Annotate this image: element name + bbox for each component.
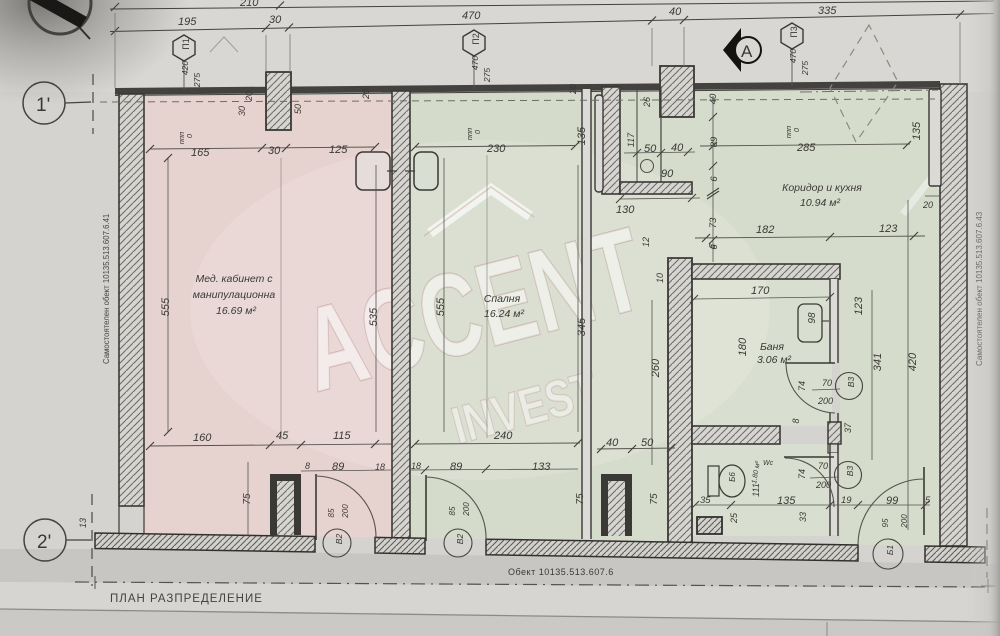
svg-text:70: 70 <box>818 461 828 471</box>
svg-text:111: 111 <box>751 483 761 497</box>
svg-text:125: 125 <box>329 144 348 156</box>
svg-text:6: 6 <box>709 176 720 182</box>
svg-text:В3: В3 <box>846 377 856 388</box>
svg-text:260: 260 <box>650 358 662 378</box>
svg-text:335: 335 <box>818 5 837 17</box>
svg-text:275: 275 <box>192 73 202 88</box>
svg-text:182: 182 <box>756 224 774 236</box>
svg-text:555: 555 <box>160 297 172 316</box>
svg-text:230: 230 <box>486 143 506 155</box>
svg-text:Самостоятелен обект 10135.513.: Самостоятелен обект 10135.513.607.6.41 <box>102 214 111 364</box>
svg-text:П2: П2 <box>471 33 481 44</box>
svg-text:8: 8 <box>305 461 310 471</box>
svg-text:341: 341 <box>872 353 884 371</box>
svg-text:30: 30 <box>237 106 247 116</box>
svg-text:123: 123 <box>853 296 865 315</box>
svg-text:210: 210 <box>239 0 259 9</box>
svg-text:12: 12 <box>641 237 651 247</box>
svg-text:В2: В2 <box>334 534 344 545</box>
svg-text:25: 25 <box>729 512 739 524</box>
svg-text:73: 73 <box>708 217 719 228</box>
svg-text:89: 89 <box>332 461 344 473</box>
svg-text:10.94 м²: 10.94 м² <box>800 197 840 209</box>
svg-text:В2: В2 <box>455 534 465 545</box>
svg-text:98: 98 <box>807 312 818 324</box>
svg-text:18: 18 <box>375 462 385 472</box>
svg-text:П3: П3 <box>789 26 799 37</box>
svg-text:50: 50 <box>644 143 657 155</box>
svg-text:50: 50 <box>641 437 654 449</box>
svg-text:420: 420 <box>907 352 919 371</box>
svg-text:2': 2' <box>37 532 51 553</box>
svg-text:Баня: Баня <box>760 341 784 353</box>
svg-text:20: 20 <box>568 84 578 95</box>
svg-text:Коридор и кухня: Коридор и кухня <box>782 182 862 194</box>
svg-text:285: 285 <box>796 142 816 154</box>
svg-text:40: 40 <box>606 437 619 449</box>
svg-text:Мед. кабинет с: Мед. кабинет с <box>195 273 273 285</box>
svg-text:345: 345 <box>576 317 588 336</box>
svg-text:75: 75 <box>575 493 586 505</box>
svg-text:555: 555 <box>435 297 447 316</box>
svg-text:135: 135 <box>576 126 588 145</box>
svg-text:74: 74 <box>797 469 807 479</box>
svg-text:170: 170 <box>751 285 770 297</box>
svg-text:85: 85 <box>448 506 457 515</box>
svg-text:37: 37 <box>843 422 853 433</box>
svg-text:135: 135 <box>777 495 796 507</box>
svg-text:В3: В3 <box>845 466 855 477</box>
svg-text:89: 89 <box>450 461 462 473</box>
svg-text:Б6: Б6 <box>728 472 737 482</box>
svg-text:A: A <box>741 42 753 61</box>
svg-text:20: 20 <box>244 91 254 102</box>
svg-text:30: 30 <box>268 145 281 157</box>
svg-text:Обект 10135.513.607.6: Обект 10135.513.607.6 <box>508 567 614 577</box>
svg-text:20: 20 <box>361 89 371 100</box>
svg-text:180: 180 <box>737 337 749 356</box>
svg-text:95: 95 <box>881 518 890 527</box>
svg-text:90: 90 <box>661 168 674 180</box>
svg-text:200: 200 <box>462 502 471 517</box>
svg-text:Wc: Wc <box>763 460 774 467</box>
svg-text:13: 13 <box>78 518 88 528</box>
svg-text:70: 70 <box>822 378 832 388</box>
svg-text:200: 200 <box>900 514 909 529</box>
svg-text:99: 99 <box>886 495 898 507</box>
svg-text:117: 117 <box>626 132 636 147</box>
svg-text:470: 470 <box>470 56 480 70</box>
svg-text:П1: П1 <box>181 38 191 49</box>
svg-text:10: 10 <box>655 273 665 283</box>
svg-text:195: 195 <box>178 16 197 28</box>
svg-text:85: 85 <box>327 508 336 517</box>
svg-text:115: 115 <box>333 430 351 442</box>
svg-text:75: 75 <box>649 493 660 505</box>
svg-text:3.06 м²: 3.06 м² <box>757 354 792 366</box>
svg-text:165: 165 <box>191 147 210 159</box>
svg-text:Спалня: Спалня <box>484 293 521 305</box>
svg-text:420: 420 <box>180 61 190 75</box>
svg-text:40: 40 <box>669 6 682 18</box>
svg-text:16.24 м²: 16.24 м² <box>484 308 524 320</box>
svg-text:74: 74 <box>797 381 807 391</box>
svg-text:19: 19 <box>841 495 852 506</box>
svg-text:130: 130 <box>616 204 635 216</box>
svg-text:8: 8 <box>791 418 801 423</box>
svg-text:26: 26 <box>642 97 652 108</box>
svg-text:123: 123 <box>879 223 898 235</box>
svg-text:275: 275 <box>482 68 492 83</box>
svg-text:200: 200 <box>817 396 833 406</box>
svg-text:470: 470 <box>462 10 481 22</box>
svg-text:40: 40 <box>708 93 719 104</box>
svg-text:Б1: Б1 <box>885 545 895 556</box>
svg-text:18: 18 <box>411 461 421 471</box>
svg-text:35: 35 <box>700 495 711 506</box>
svg-text:133: 133 <box>532 461 551 473</box>
svg-text:89: 89 <box>709 136 720 147</box>
svg-text:манипулационна: манипулационна <box>193 289 276 301</box>
svg-text:45: 45 <box>276 430 289 442</box>
svg-text:240: 240 <box>493 430 513 442</box>
svg-text:470: 470 <box>788 49 798 63</box>
svg-text:200: 200 <box>341 504 350 519</box>
svg-text:200: 200 <box>815 480 831 490</box>
svg-text:20: 20 <box>922 200 933 210</box>
svg-text:1': 1' <box>36 95 50 116</box>
svg-text:275: 275 <box>800 61 810 76</box>
svg-text:135: 135 <box>911 121 923 140</box>
svg-text:33: 33 <box>798 512 808 522</box>
svg-text:16.69 м²: 16.69 м² <box>216 305 256 317</box>
svg-text:160: 160 <box>193 432 212 444</box>
svg-text:50: 50 <box>293 104 303 114</box>
svg-text:30: 30 <box>269 14 282 26</box>
svg-text:75: 75 <box>242 493 253 505</box>
svg-text:535: 535 <box>368 307 380 326</box>
svg-text:ПЛАН РАЗПРЕДЕЛЕНИЕ: ПЛАН РАЗПРЕДЕЛЕНИЕ <box>110 593 263 605</box>
